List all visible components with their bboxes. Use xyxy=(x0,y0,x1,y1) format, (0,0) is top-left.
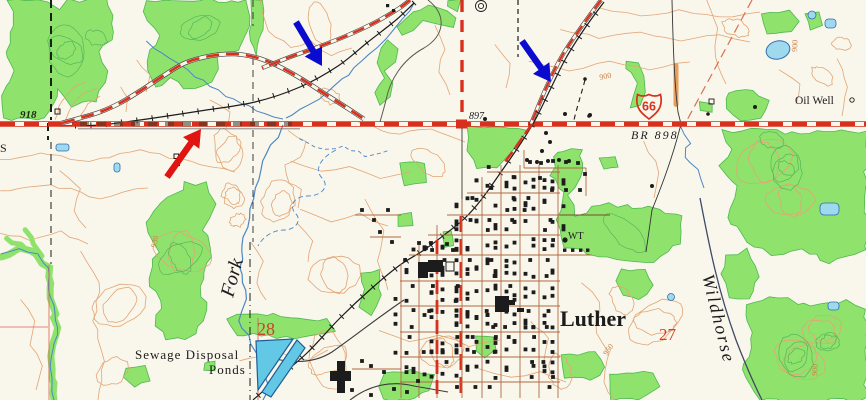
svg-text:27: 27 xyxy=(659,325,677,344)
svg-text:Luther: Luther xyxy=(560,306,626,331)
svg-text:897: 897 xyxy=(469,111,485,122)
svg-text:BR 898: BR 898 xyxy=(631,128,679,142)
svg-text:Oil Well: Oil Well xyxy=(795,95,834,107)
svg-text:66: 66 xyxy=(642,100,656,114)
svg-text:918: 918 xyxy=(20,109,37,121)
svg-text:900: 900 xyxy=(810,363,820,376)
svg-text:WT: WT xyxy=(568,231,584,242)
svg-text:Sewage Disposal: Sewage Disposal xyxy=(135,347,239,362)
svg-text:Ponds: Ponds xyxy=(209,362,246,377)
svg-text:900: 900 xyxy=(790,40,800,52)
svg-text:S: S xyxy=(0,141,7,155)
svg-text:28: 28 xyxy=(257,319,275,339)
